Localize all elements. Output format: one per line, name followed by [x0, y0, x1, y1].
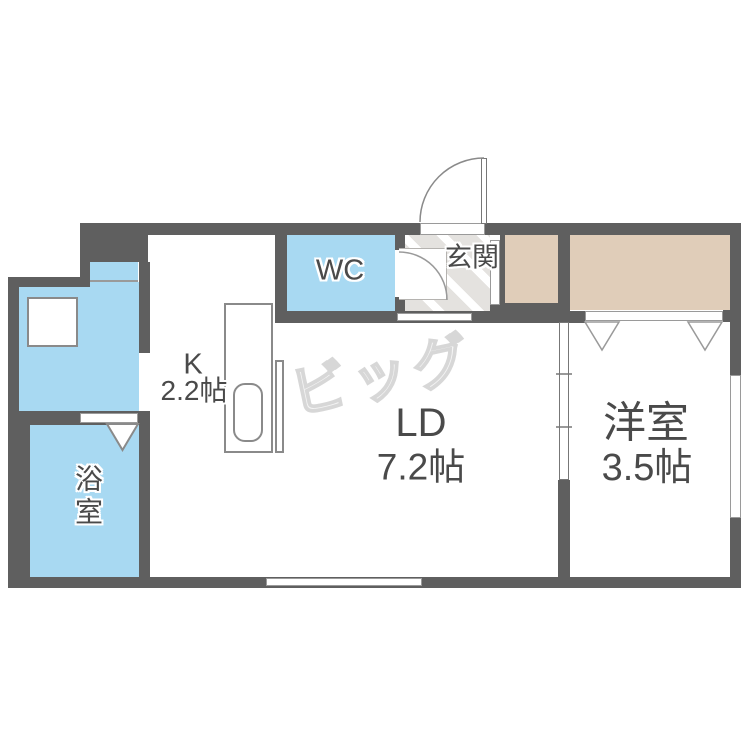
- bathroom-door-mark: [107, 424, 138, 450]
- label-kitchen-area: 2.2帖: [161, 377, 228, 405]
- wc-door-swing-arc: [399, 252, 447, 300]
- label-ld-name: LD: [395, 403, 446, 443]
- plan-symbols-layer: [0, 0, 750, 750]
- closet-door-mark-right: [688, 322, 722, 350]
- label-ld-area: 7.2帖: [377, 449, 465, 486]
- floor-plan: ビッグ 玄関 WC K 2.2帖 LD 7.: [0, 0, 750, 750]
- label-wc: WC: [316, 257, 364, 286]
- label-western-room-area: 3.5帖: [602, 449, 693, 487]
- closet-door-mark-left: [585, 322, 619, 350]
- label-bathroom: 浴室: [73, 464, 101, 530]
- entrance-door-swing-arc: [420, 158, 484, 222]
- label-western-room-name: 洋室: [603, 403, 689, 446]
- label-entrance: 玄関: [445, 245, 499, 272]
